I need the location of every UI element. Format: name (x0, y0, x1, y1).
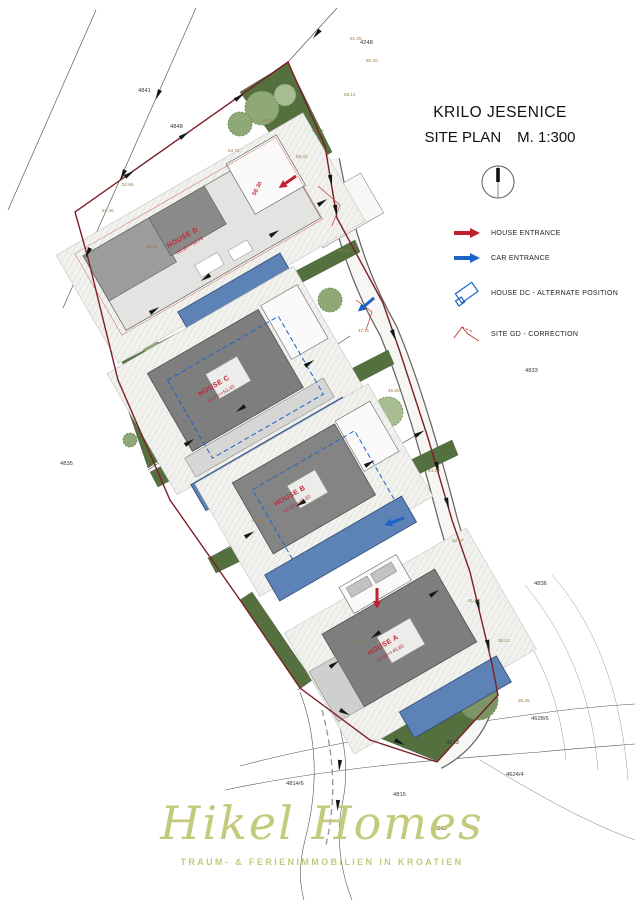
spot-elevation: 48.25 (338, 248, 350, 253)
legend-item-site-correction: SITE GD - CORRECTION (452, 322, 622, 346)
legend-item-house-entrance: HOUSE ENTRANCE (452, 227, 622, 239)
spot-elevation: 41.22 (468, 598, 480, 603)
spot-elevation: 42.57 (452, 538, 464, 543)
spot-elevation: 91.05 (350, 36, 362, 41)
north-arrow-icon (479, 163, 517, 201)
car-entrance-icon (452, 252, 482, 264)
legend-label: HOUSE ENTRANCE (491, 230, 561, 237)
spot-elevation: 51.40 (102, 208, 114, 213)
legend-label: CAR ENTRANCE (491, 255, 550, 262)
spot-elevation: 64.02 (252, 518, 264, 523)
spot-elevation: 60.40 (366, 58, 378, 63)
spot-elevation: 57.16 (312, 128, 324, 133)
spot-elevation: 44.39 (428, 468, 440, 473)
spot-elevation: 56.41 (296, 154, 308, 159)
site-plan-sheet: HOUSE D ±0,00=+56,70 HOUSE C ±0,00=+53,4… (0, 0, 635, 900)
parcel-number: 4835 (60, 461, 73, 467)
project-title: KRILO JESENICE (393, 104, 607, 122)
site-correction-icon (452, 322, 482, 346)
alternate-position-icon (452, 277, 482, 309)
spot-elevation: 45.80 (388, 388, 400, 393)
parcel-number: 4628/6 (531, 716, 549, 722)
spot-elevation: 55.08 (262, 118, 274, 123)
spot-elevation: 49.32 (146, 244, 158, 249)
spot-elevation: 36.45 (518, 698, 530, 703)
parcel-number: 4836 (534, 581, 547, 587)
sheet-title: SITE PLAN (424, 129, 501, 146)
parcel-number: 4248 (360, 40, 373, 46)
north-indicator (479, 163, 517, 206)
legend: HOUSE ENTRANCE CAR ENTRANCE HOUSE DC - A… (452, 227, 622, 346)
parcel-number: 4833 (525, 368, 538, 374)
logo-wordmark: Hikel Homes (148, 798, 496, 849)
logo-tagline: TRAUM- & FERIENIMMOBILIEN IN KROATIEN (148, 857, 496, 867)
company-logo: Hikel Homes TRAUM- & FERIENIMMOBILIEN IN… (148, 798, 496, 867)
spot-elevation: 61.05 (348, 638, 360, 643)
legend-label: HOUSE DC - ALTERNATE POSITION (491, 290, 618, 297)
spot-elevation: 53.71 (228, 148, 240, 153)
spot-elevation: 52.66 (122, 182, 134, 187)
legend-label: SITE GD - CORRECTION (491, 331, 578, 338)
parcel-number: 4848 (170, 124, 183, 130)
spot-elevation: 38.12 (498, 638, 510, 643)
parcel-number: 4814/6 (286, 781, 304, 787)
drawing-scale: M. 1:300 (517, 129, 575, 146)
title-block: KRILO JESENICE SITE PLAN M. 1:300 (393, 104, 607, 146)
parcel-number: 4813 (446, 740, 459, 746)
terrain-contours (500, 575, 628, 780)
spot-elevation: 58.12 (344, 92, 356, 97)
parcel-number: 4841 (138, 88, 151, 94)
parcel-number: 4624/4 (506, 772, 525, 778)
legend-item-car-entrance: CAR ENTRANCE (452, 252, 622, 264)
spot-elevation: 47.11 (358, 328, 370, 333)
house-entrance-icon (452, 227, 482, 239)
legend-item-alternate-position: HOUSE DC - ALTERNATE POSITION (452, 277, 622, 309)
